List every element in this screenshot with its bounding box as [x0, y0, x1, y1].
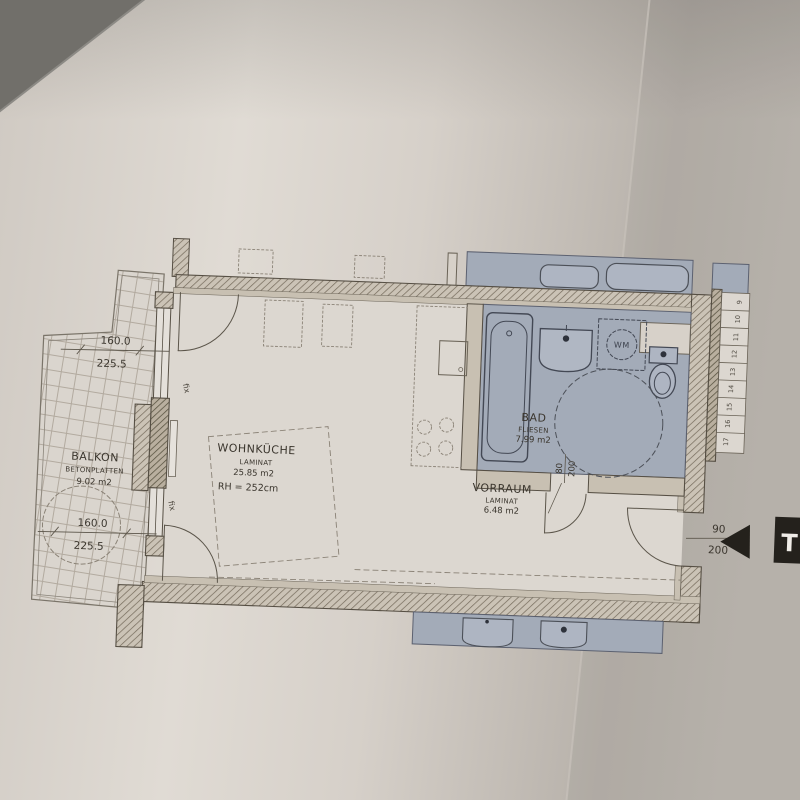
balcony-pillar — [132, 404, 151, 491]
washbasin — [539, 325, 593, 373]
photographed-floor-plan: fix fix WM — [0, 0, 800, 800]
bad-material: FLIESEN — [518, 426, 549, 435]
unit-marker-letter: T — [781, 529, 799, 558]
step-10: 10 — [734, 315, 742, 324]
step-12: 12 — [730, 350, 738, 359]
bad-door-height: 200 — [567, 461, 578, 478]
unit-marker: T — [774, 517, 800, 565]
vorraum-area: 6.48 m2 — [483, 506, 519, 517]
wohnkueche-ceiling: RH = 252cm — [218, 481, 279, 494]
wall-stub-topleft — [172, 238, 189, 277]
step-17: 17 — [722, 437, 730, 446]
bath-wall-right — [588, 475, 685, 497]
entrance-door-width: 90 — [712, 523, 726, 536]
balkon-area: 9.02 m2 — [76, 477, 112, 488]
wohnkueche-material: LAMINAT — [239, 458, 273, 467]
dim-bottom-a: 160.0 — [77, 517, 108, 530]
dim-top-b: 225.5 — [96, 358, 127, 371]
vorraum-name: VORRAUM — [472, 481, 532, 496]
entrance-door-height: 200 — [708, 544, 728, 557]
floor-plan-svg: fix fix WM — [0, 0, 800, 800]
vorraum-material: LAMINAT — [485, 497, 519, 506]
wall-left-pier1 — [155, 292, 174, 309]
wall-stub-mid — [447, 253, 457, 287]
wohnkueche-area: 25.85 m2 — [233, 468, 274, 480]
step-11: 11 — [732, 333, 740, 342]
step-16: 16 — [724, 420, 732, 429]
plan-group: fix fix WM — [22, 233, 800, 673]
dim-top-a: 160.0 — [100, 335, 131, 348]
step-9: 9 — [735, 300, 743, 304]
bad-name: BAD — [521, 411, 547, 425]
wm-label: WM — [614, 340, 630, 350]
step-15: 15 — [725, 403, 733, 412]
step-13: 13 — [729, 368, 737, 377]
bad-door-width: 80 — [555, 463, 565, 474]
balkon-name: BALKON — [71, 450, 119, 465]
staircase: 9 10 11 12 13 14 15 16 17 — [716, 292, 750, 453]
wall-left-pier3 — [145, 536, 164, 557]
step-14: 14 — [727, 385, 735, 394]
dim-bottom-b: 225.5 — [73, 540, 104, 553]
wall-stub-bottomleft — [116, 585, 144, 648]
bad-area: 7.99 m2 — [515, 435, 551, 446]
